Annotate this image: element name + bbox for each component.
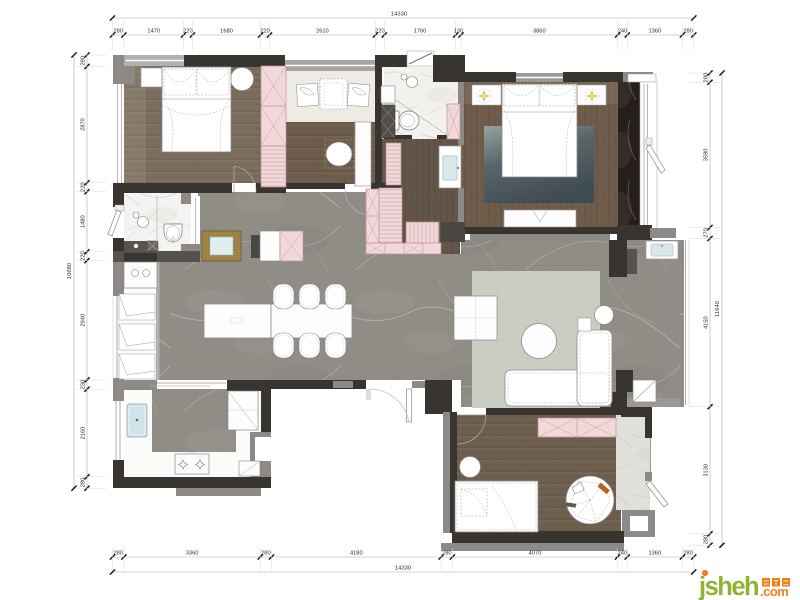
svg-text:4070: 4070: [529, 551, 542, 557]
svg-text:220: 220: [183, 29, 193, 35]
svg-text:270: 270: [704, 228, 710, 238]
svg-text:280: 280: [113, 29, 123, 35]
svg-text:130: 130: [454, 29, 464, 35]
svg-text:3580: 3580: [704, 149, 710, 162]
svg-text:280: 280: [113, 551, 123, 557]
svg-text:3360: 3360: [186, 551, 199, 557]
svg-text:230: 230: [81, 380, 87, 390]
svg-text:220: 220: [81, 251, 87, 261]
svg-text:jsheh: jsheh: [698, 573, 758, 600]
svg-text:220: 220: [260, 29, 270, 35]
svg-text:280: 280: [683, 29, 693, 35]
svg-text:1360: 1360: [648, 29, 661, 35]
svg-text:2610: 2610: [316, 29, 329, 35]
svg-text:14330: 14330: [391, 12, 408, 18]
svg-text:11640: 11640: [715, 300, 721, 317]
svg-text:2870: 2870: [81, 118, 87, 131]
svg-text:3130: 3130: [704, 464, 710, 477]
svg-text:280: 280: [261, 551, 271, 557]
svg-text:220: 220: [375, 29, 385, 35]
svg-text:2160: 2160: [81, 427, 87, 440]
svg-text:280: 280: [704, 73, 710, 83]
svg-text:240: 240: [618, 551, 628, 557]
svg-text:10680: 10680: [67, 262, 73, 279]
svg-text:1760: 1760: [414, 29, 427, 35]
svg-text:280: 280: [81, 56, 87, 65]
svg-text:240: 240: [618, 29, 628, 35]
svg-text:4150: 4150: [704, 316, 710, 329]
svg-text:280: 280: [704, 535, 710, 545]
svg-text:2940: 2940: [81, 314, 87, 327]
svg-text:1680: 1680: [220, 29, 233, 35]
svg-text:1480: 1480: [81, 215, 87, 228]
svg-text:220: 220: [81, 182, 87, 192]
svg-text:1360: 1360: [648, 551, 661, 557]
svg-text:14330: 14330: [395, 566, 412, 572]
svg-text:4180: 4180: [350, 551, 363, 557]
svg-text:280: 280: [442, 551, 452, 557]
svg-text:3860: 3860: [533, 29, 546, 35]
svg-text:280: 280: [683, 551, 693, 557]
svg-text:1470: 1470: [147, 29, 160, 35]
svg-text:280: 280: [81, 478, 87, 488]
